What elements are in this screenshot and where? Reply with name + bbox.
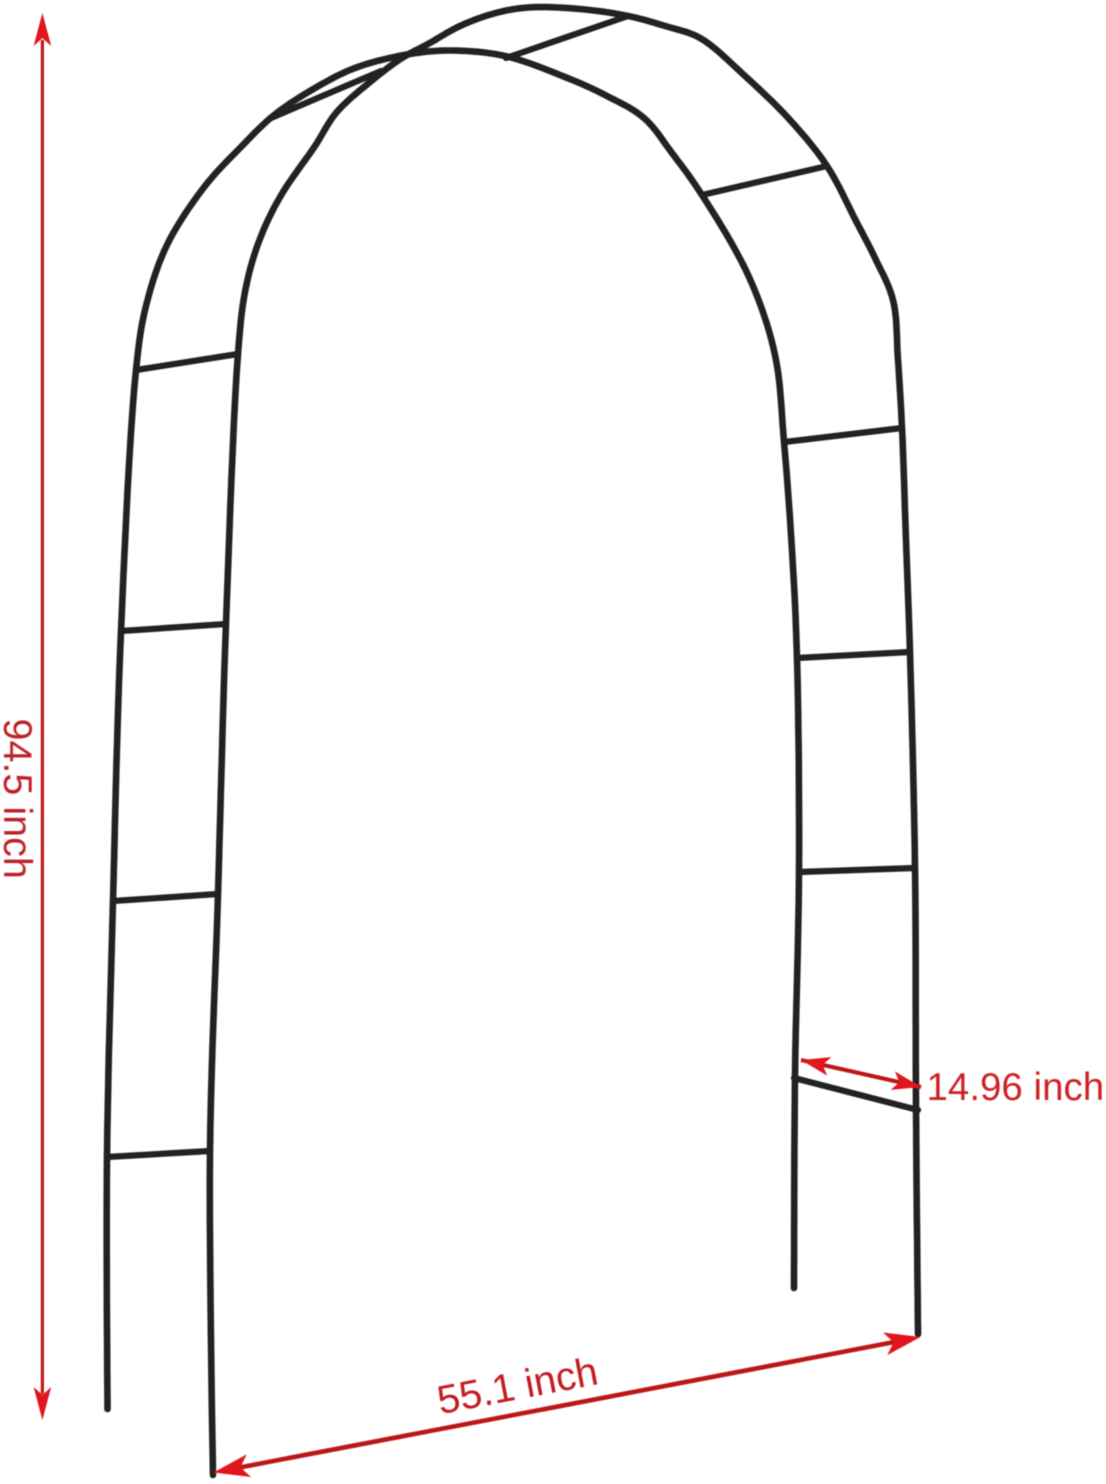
svg-text:14.96 inch: 14.96 inch [927,1066,1105,1109]
svg-text:94.5 inch: 94.5 inch [0,719,39,879]
